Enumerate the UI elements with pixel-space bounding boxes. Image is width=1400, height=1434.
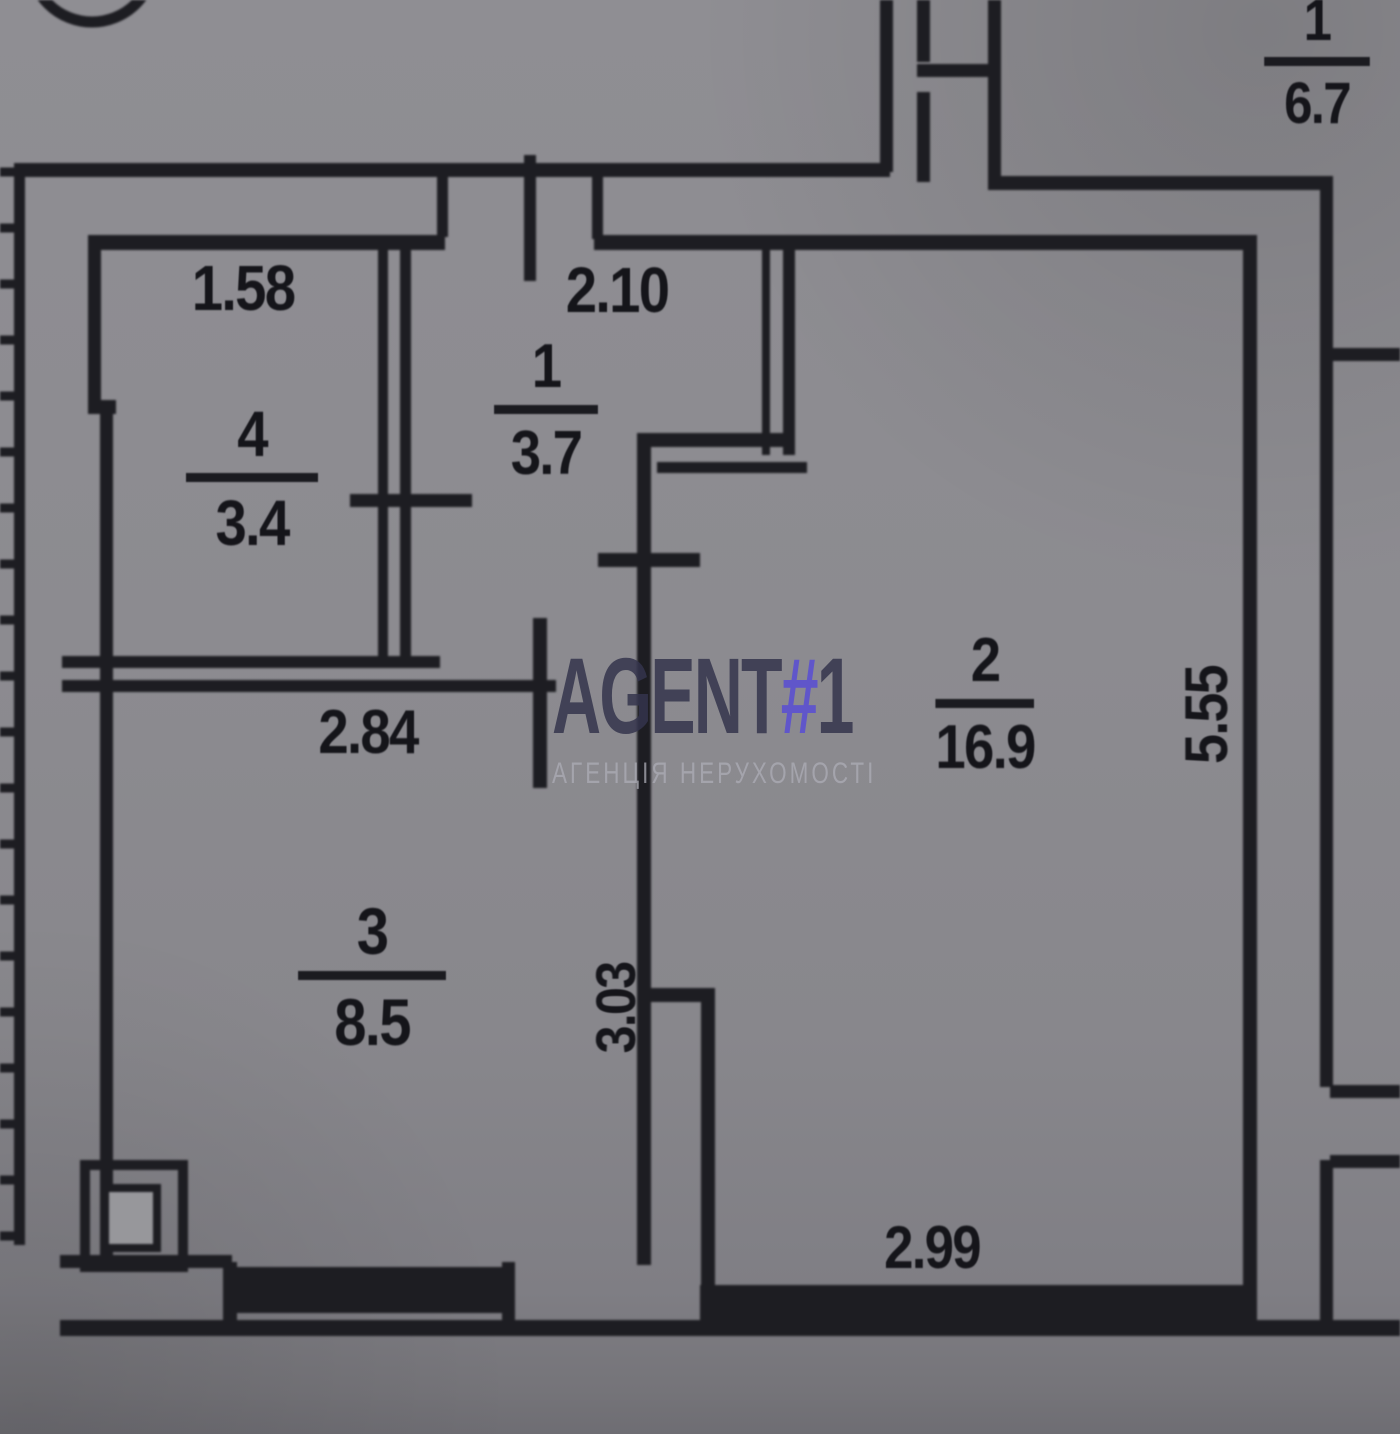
dimension-width-room2: 2.99	[884, 1218, 980, 1278]
room3-divider-face-b	[62, 680, 556, 692]
outer-wall-top-left	[18, 163, 890, 177]
entry-door-jamb-b	[917, 92, 930, 182]
room-4-label: 4 3.4	[186, 402, 318, 555]
entrance-jamb-left	[437, 177, 448, 237]
room-area: 3.7	[511, 423, 582, 485]
floor-plan-photo: 1.58 2.10 2.84 2.99 3.03 5.55 1 3.7 2 16…	[0, 0, 1400, 1434]
watermark-number: 1	[817, 635, 853, 756]
inner-wall-top-left	[88, 235, 445, 250]
watermark-logo: AGENT#1	[552, 652, 853, 741]
dimension-height-room2: 5.55	[1177, 666, 1237, 764]
hash-icon: #	[781, 635, 817, 756]
partition-v1-face-a	[762, 250, 770, 455]
room-area: 3.4	[215, 491, 288, 555]
room4-wall-face-b	[400, 235, 411, 663]
room4-door-mark	[350, 494, 472, 507]
dimension-width-room3: 2.84	[318, 702, 417, 764]
dimension-entrance-width: 2.10	[566, 258, 669, 322]
room2-window-band	[700, 1298, 1250, 1328]
watermark: AGENT#1 АГЕНЦІЯ НЕРУХОМОСТІ	[552, 652, 1029, 791]
outer-wall-right-upper	[1320, 183, 1333, 1087]
room3-window-jamb-right	[502, 1262, 515, 1326]
room-number: 4	[237, 402, 267, 466]
plan-circle-mark	[30, 0, 154, 22]
watermark-brand: AGENT	[552, 635, 781, 756]
fraction-bar	[186, 473, 318, 482]
fraction-bar	[494, 405, 598, 414]
partition-h-face-a	[637, 433, 795, 447]
hatch-band-line	[14, 163, 25, 1245]
room3-window-band	[237, 1267, 509, 1313]
dimension-width-room4: 1.58	[192, 256, 295, 320]
entry-door-leaf	[917, 64, 1000, 77]
room3-divider-face-a	[62, 656, 440, 668]
vent-shaft-inner	[105, 1188, 157, 1248]
dimension-height-room3: 3.03	[588, 963, 644, 1054]
room-top-right-label: 1 6.7	[1264, 0, 1370, 133]
room2-right-wall	[1243, 250, 1257, 1322]
room4-wall-face-a	[378, 235, 388, 663]
outer-wall-right-lower	[1320, 1160, 1333, 1332]
left-wall-lower	[100, 400, 113, 1267]
outer-wall-top-right	[988, 176, 1333, 190]
left-wall-upper	[88, 235, 101, 411]
entrance-door-leaf	[524, 155, 536, 281]
room-number: 1	[532, 336, 561, 398]
balcony-partition-tick-2	[1330, 1085, 1400, 1098]
room3-window-jamb-left	[223, 1262, 237, 1326]
inner-wall-top-right	[594, 235, 1257, 250]
entry-recess-right	[988, 0, 1001, 182]
room3-door-mark	[533, 618, 547, 788]
room-number: 1	[1304, 0, 1331, 50]
fraction-bar	[1264, 57, 1370, 66]
entry-recess-left	[880, 0, 893, 172]
balcony-partition-tick-3	[1330, 1155, 1400, 1168]
room2-bottom-inner-wall	[700, 1285, 1250, 1298]
room2-door-mark	[598, 553, 700, 567]
room-1-label: 1 3.7	[494, 336, 598, 485]
fraction-bar	[298, 971, 446, 980]
balcony-partition-tick-1	[1327, 348, 1400, 361]
room2-left-wall-lower	[701, 988, 715, 1306]
room-area: 6.7	[1284, 75, 1350, 133]
partition-v1-face-b	[783, 250, 795, 455]
room-area: 8.5	[334, 989, 409, 1055]
partition-h-face-b	[657, 462, 807, 473]
room-number: 3	[357, 898, 388, 964]
watermark-subtitle: АГЕНЦІЯ НЕРУХОМОСТІ	[552, 757, 910, 791]
entry-door-jamb-a	[917, 0, 930, 62]
room-3-label: 3 8.5	[298, 898, 446, 1055]
entrance-jamb-right	[592, 177, 603, 239]
